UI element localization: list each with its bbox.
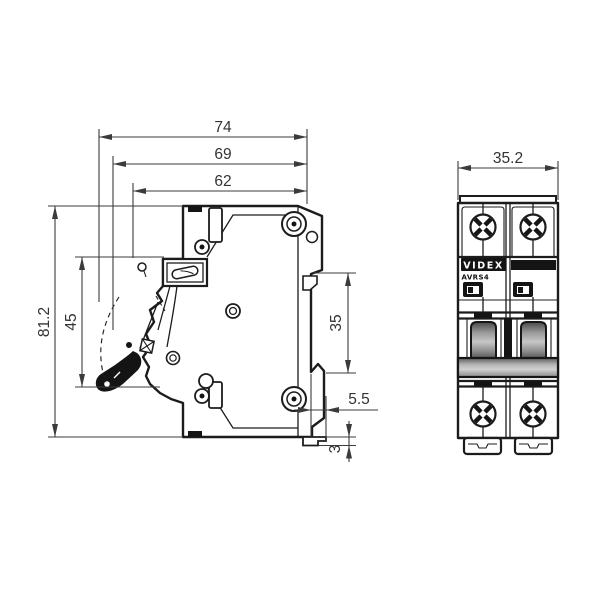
lower-screw-right: [521, 402, 546, 427]
model-text: AVRS4: [462, 274, 490, 282]
top-slot: [209, 208, 222, 242]
indicator-window-right: [513, 282, 533, 297]
front-view-dimensions: 35.2: [458, 150, 558, 200]
dim-depth-body: 62: [214, 173, 231, 190]
toggle-lever-right: [521, 322, 546, 358]
din-latch-tab: [303, 276, 317, 290]
terminal-screw-top: [282, 212, 306, 236]
mechanism-ring: [167, 352, 180, 365]
indicator-window-left: [463, 282, 483, 297]
toggle-lever-left: [471, 322, 496, 358]
dim-width-total: 35.2: [493, 150, 523, 167]
lever-tie-bar: [458, 358, 558, 377]
label-strip-right: [511, 260, 556, 270]
dim-depth-total: 74: [214, 119, 232, 136]
technical-drawing-canvas: 74 69 62 81.2 45 35 5.5 3: [0, 0, 600, 600]
toggle-housing: [163, 259, 207, 286]
terminal-cover-left: [464, 438, 501, 454]
backplate-hole: [307, 232, 318, 243]
case-pin-middle: [226, 304, 240, 318]
pivot-dot: [126, 342, 132, 348]
brand-text: VIDEX: [463, 261, 504, 272]
dim-depth-upper: 69: [214, 146, 231, 163]
terminal-cover-right: [515, 438, 552, 454]
padlock-eyelet: [138, 263, 146, 277]
terminal-screw-bottom: [282, 387, 306, 411]
side-view: 74 69 62 81.2 45 35 5.5 3: [36, 119, 378, 462]
breaker-dimension-drawing: 74 69 62 81.2 45 35 5.5 3: [0, 0, 600, 600]
case-pin-lower: [199, 374, 213, 388]
dim-clip-offset: 5.5: [348, 391, 370, 408]
front-view-body: VIDEX AVRS4: [458, 196, 558, 454]
side-view-body: [96, 206, 326, 446]
lever-center-block: [504, 318, 512, 358]
lower-screw-left: [471, 402, 496, 427]
terminal-screw-left: [471, 215, 496, 240]
rivet-bottom: [195, 389, 209, 403]
dim-clip-height: 3: [327, 445, 344, 454]
top-notch: [188, 206, 202, 212]
toggle-lever: [96, 351, 141, 392]
rivet-top: [195, 240, 209, 254]
front-view: VIDEX AVRS4: [458, 150, 558, 454]
terminal-screw-right: [521, 215, 546, 240]
dim-height-total: 81.2: [36, 307, 53, 337]
dim-height-front: 45: [63, 313, 80, 330]
bottom-notch: [188, 431, 202, 437]
adjuster-nut: [140, 339, 154, 353]
dim-din-recess: 35: [328, 314, 345, 331]
din-clip-hook: [303, 437, 326, 446]
